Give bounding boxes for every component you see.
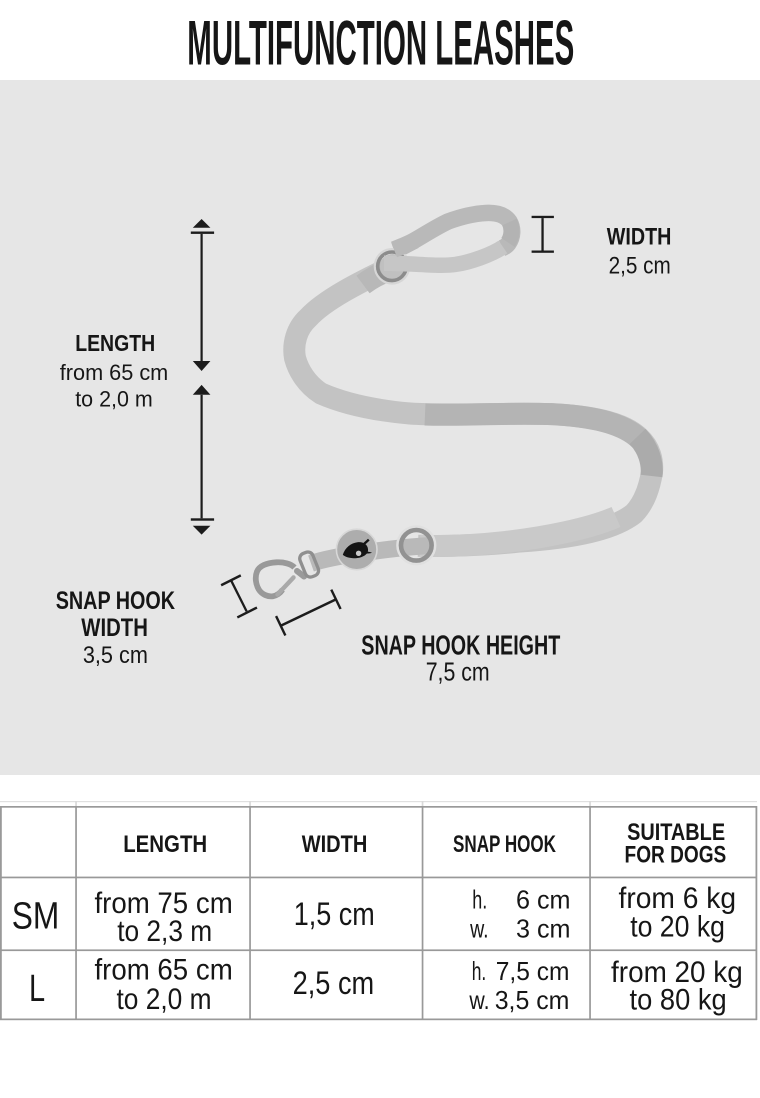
svg-text:2,5 cm: 2,5 cm (609, 252, 671, 279)
svg-text:3,5 cm: 3,5 cm (495, 985, 570, 1015)
svg-text:L: L (29, 968, 45, 1010)
svg-text:7,5 cm: 7,5 cm (496, 956, 570, 986)
svg-text:MULTIFUNCTION LEASHES: MULTIFUNCTION LEASHES (187, 9, 574, 79)
svg-text:FOR DOGS: FOR DOGS (625, 841, 727, 868)
svg-text:1,5 cm: 1,5 cm (294, 896, 375, 932)
svg-text:to 2,3 m: to 2,3 m (117, 915, 212, 948)
svg-text:h.: h. (472, 884, 487, 914)
svg-text:6 cm: 6 cm (516, 884, 571, 914)
svg-text:w.: w. (469, 913, 488, 943)
svg-text:7,5 cm: 7,5 cm (426, 657, 490, 687)
svg-text:WIDTH: WIDTH (302, 831, 368, 858)
svg-text:h.: h. (472, 956, 487, 986)
svg-text:2,5 cm: 2,5 cm (293, 965, 375, 1001)
svg-text:to 2,0 m: to 2,0 m (117, 983, 212, 1016)
svg-text:LENGTH: LENGTH (123, 831, 207, 858)
svg-text:w.: w. (469, 985, 490, 1015)
svg-text:to 20 kg: to 20 kg (630, 911, 725, 944)
svg-text:from 65 cm: from 65 cm (60, 360, 169, 385)
svg-text:SNAP HOOK: SNAP HOOK (56, 587, 175, 615)
svg-text:SM: SM (12, 896, 60, 938)
svg-text:LENGTH: LENGTH (75, 330, 155, 356)
svg-text:3 cm: 3 cm (516, 913, 571, 943)
svg-text:WIDTH: WIDTH (607, 223, 672, 250)
svg-text:from 65 cm: from 65 cm (94, 953, 232, 986)
svg-text:SNAP HOOK: SNAP HOOK (453, 831, 556, 858)
svg-text:3,5 cm: 3,5 cm (83, 642, 148, 669)
svg-text:WIDTH: WIDTH (81, 614, 148, 642)
svg-text:to 2,0 m: to 2,0 m (75, 387, 153, 412)
svg-text:to 80 kg: to 80 kg (630, 984, 727, 1017)
